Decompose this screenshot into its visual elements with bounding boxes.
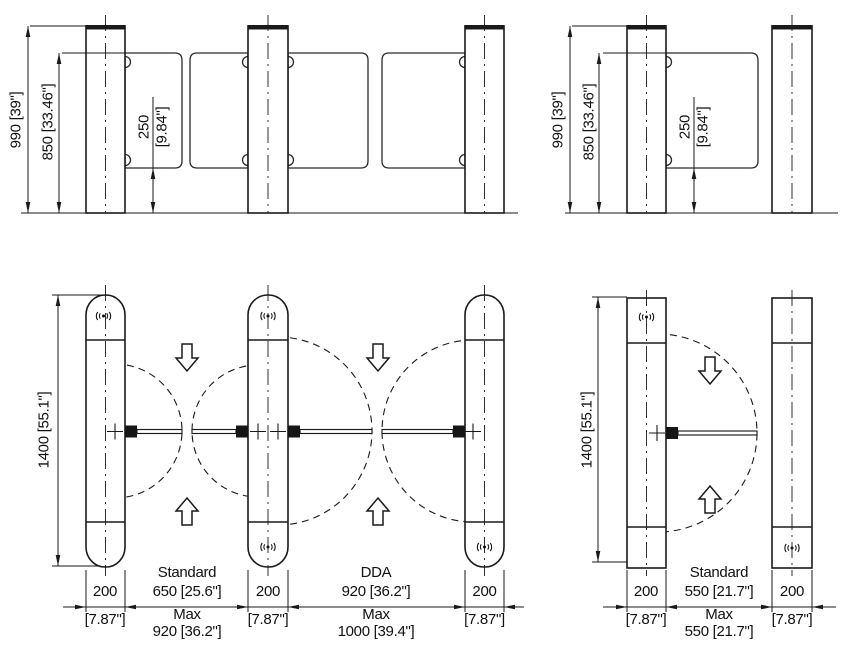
turnstile-technical-drawing: 990 [39"] 850 [33.46"] 250 [9.84"] — [0, 0, 856, 652]
gate-wing — [137, 430, 182, 434]
wing-hinge-block — [125, 426, 137, 438]
elevation-left-group: 990 [39"] 850 [33.46"] 250 [9.84"] — [8, 15, 519, 213]
lane-standard-width: 650 [25.6"] — [153, 583, 222, 600]
dim-label-990: 990 [39"] — [550, 91, 567, 148]
dim-post-width-in: [7.87"] — [85, 611, 126, 628]
gate-wing — [192, 430, 236, 434]
gate-wing — [382, 430, 453, 434]
passage-arrow-down — [367, 344, 389, 371]
lane-standard-max: 920 [36.2"] — [153, 623, 222, 640]
wing-hinge-block — [288, 426, 300, 438]
dim-label-1400: 1400 [55.1"] — [579, 391, 596, 468]
dim-post-width-mm: 200 — [780, 583, 804, 600]
glass-panel — [288, 53, 368, 168]
lane-standard-label: Standard — [690, 564, 748, 581]
dim-label-250: 250 — [677, 115, 694, 139]
glass-panel — [190, 53, 248, 168]
dim-post-width-mm: 200 — [472, 583, 496, 600]
gate-wing — [678, 431, 757, 435]
passage-arrow-down — [176, 344, 198, 371]
passage-arrow-down — [699, 357, 721, 384]
dimension-cabinet-length: 1400 [55.1"] — [579, 297, 628, 562]
dim-label-250-in: [9.84"] — [695, 106, 712, 147]
dim-label-250: 250 — [136, 115, 153, 139]
gate-wing — [300, 430, 372, 434]
passage-arrow-up — [176, 498, 198, 525]
dim-post-width-in: [7.87"] — [626, 611, 667, 628]
passage-arrow-up — [367, 498, 389, 525]
drawing-canvas: 990 [39"] 850 [33.46"] 250 [9.84"] — [0, 0, 856, 652]
dim-post-width-mm: 200 — [93, 583, 117, 600]
glass-panel — [666, 53, 758, 168]
dim-post-width-in: [7.87"] — [772, 611, 813, 628]
dim-label-250-in: [9.84"] — [154, 106, 171, 147]
dim-post-width-in: [7.87"] — [248, 611, 289, 628]
dim-label-850: 850 [33.46"] — [40, 83, 57, 160]
lane-standard-label: Standard — [158, 564, 216, 581]
dim-label-1400: 1400 [55.1"] — [36, 391, 53, 468]
dim-label-990: 990 [39"] — [8, 91, 25, 148]
lane-dda-label: DDA — [361, 564, 392, 581]
lane-dda-width: 920 [36.2"] — [342, 583, 411, 600]
lane-max-label: Max — [362, 606, 390, 623]
plan-right-group: 1400 [55.1"] 200 [7.87"] Standard 550 [2… — [579, 290, 837, 640]
wing-hinge-block — [453, 426, 465, 438]
wing-hinge-block — [666, 427, 678, 439]
dim-label-850: 850 [33.46"] — [581, 83, 598, 160]
lane-max-label: Max — [705, 606, 733, 623]
lane-dda-max: 1000 [39.4"] — [338, 623, 415, 640]
lane-single-width: 550 [21.7"] — [685, 583, 754, 600]
elevation-right-group: 990 [39"] 850 [33.46"] 250 [9.84"] — [550, 15, 839, 213]
passage-arrow-up — [699, 486, 721, 513]
dimension-chain: 200 [7.87"] Standard 550 [21.7"] Max 550… — [603, 564, 836, 640]
glass-panel — [382, 53, 465, 168]
wing-hinge-block — [236, 426, 248, 438]
plan-left-group: 1400 [55.1"] 200 [7.87"] Standard 650 [2… — [36, 285, 525, 640]
dim-post-width-mm: 200 — [256, 583, 280, 600]
dim-post-width-in: [7.87"] — [464, 611, 505, 628]
dimension-chain: 200 [7.87"] Standard 650 [25.6"] Max 920… — [63, 564, 524, 640]
lane-single-max: 550 [21.7"] — [685, 623, 754, 640]
lane-max-label: Max — [173, 606, 201, 623]
dim-post-width-mm: 200 — [634, 583, 658, 600]
